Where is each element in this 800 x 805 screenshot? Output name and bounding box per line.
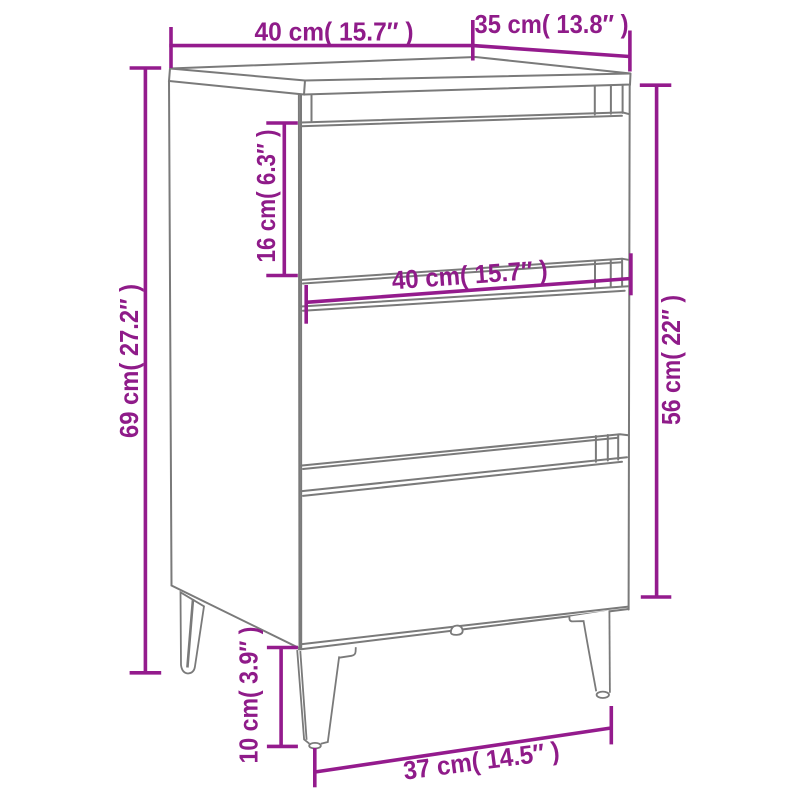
svg-text:40 cm( 15.7″ ): 40 cm( 15.7″ ) — [255, 16, 414, 46]
svg-text:56 cm( 22″ ): 56 cm( 22″ ) — [656, 295, 686, 425]
svg-text:10 cm( 3.9″ ): 10 cm( 3.9″ ) — [234, 627, 264, 764]
svg-text:35 cm( 13.8″ ): 35 cm( 13.8″ ) — [475, 9, 629, 39]
svg-text:16 cm( 6.3″ ): 16 cm( 6.3″ ) — [251, 130, 281, 263]
svg-text:69 cm( 27.2″ ): 69 cm( 27.2″ ) — [114, 284, 144, 438]
